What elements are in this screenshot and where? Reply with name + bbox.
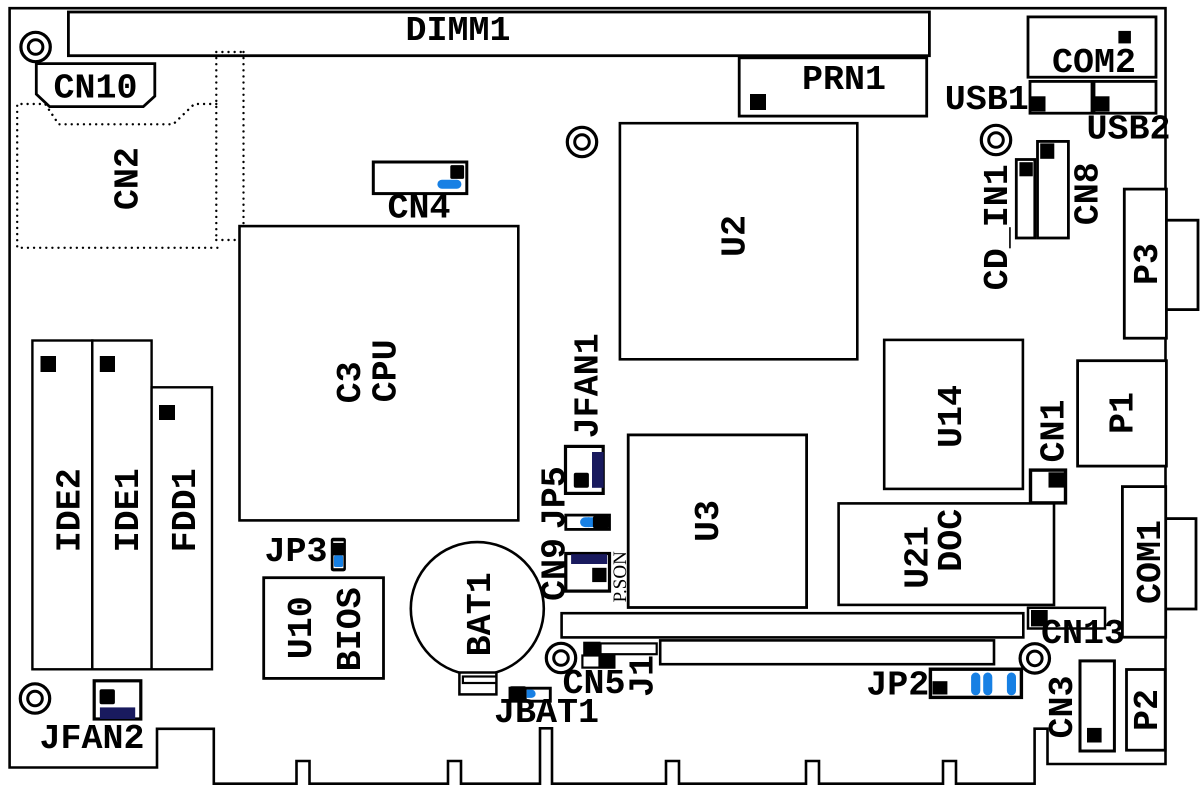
svg-text:JP3: JP3 bbox=[264, 532, 327, 572]
svg-text:USB2: USB2 bbox=[1086, 110, 1170, 150]
svg-text:P.SON: P.SON bbox=[610, 551, 631, 602]
svg-text:J1: J1 bbox=[623, 655, 663, 697]
svg-text:P1: P1 bbox=[1104, 392, 1144, 434]
svg-text:DOC: DOC bbox=[932, 509, 972, 572]
svg-text:JFAN1: JFAN1 bbox=[568, 333, 608, 438]
svg-text:CN3: CN3 bbox=[1043, 675, 1083, 738]
svg-text:JP2: JP2 bbox=[866, 666, 929, 706]
svg-text:CN9: CN9 bbox=[535, 538, 575, 601]
svg-text:IDE2: IDE2 bbox=[50, 468, 90, 552]
svg-text:COM1: COM1 bbox=[1131, 520, 1171, 604]
svg-text:JFAN2: JFAN2 bbox=[39, 719, 144, 759]
svg-text:CN4: CN4 bbox=[387, 189, 450, 229]
svg-text:PRN1: PRN1 bbox=[802, 60, 886, 100]
svg-text:CN2: CN2 bbox=[109, 147, 149, 210]
svg-text:U2: U2 bbox=[715, 215, 755, 257]
svg-text:CN8: CN8 bbox=[1069, 162, 1109, 225]
svg-text:U14: U14 bbox=[932, 385, 972, 448]
svg-text:C3: C3 bbox=[331, 361, 371, 403]
svg-text:JP5: JP5 bbox=[535, 466, 575, 529]
svg-text:CN10: CN10 bbox=[53, 69, 137, 109]
svg-text:BIOS: BIOS bbox=[331, 587, 371, 671]
svg-text:DIMM1: DIMM1 bbox=[405, 11, 510, 51]
svg-text:CN13: CN13 bbox=[1041, 614, 1125, 654]
svg-text:FDD1: FDD1 bbox=[166, 468, 206, 552]
svg-text:BAT1: BAT1 bbox=[461, 572, 501, 656]
svg-text:USB1: USB1 bbox=[945, 80, 1029, 120]
svg-text:U3: U3 bbox=[689, 500, 729, 542]
svg-text:CN5: CN5 bbox=[562, 664, 625, 704]
svg-text:P2: P2 bbox=[1128, 689, 1168, 731]
svg-text:COM2: COM2 bbox=[1052, 43, 1136, 83]
svg-text:U10: U10 bbox=[282, 596, 322, 659]
svg-text:CPU: CPU bbox=[367, 339, 407, 402]
svg-text:P3: P3 bbox=[1128, 243, 1168, 285]
svg-text:IDE1: IDE1 bbox=[109, 468, 149, 552]
svg-text:CN1: CN1 bbox=[1035, 399, 1075, 462]
svg-text:CD_IN1: CD_IN1 bbox=[978, 164, 1018, 290]
